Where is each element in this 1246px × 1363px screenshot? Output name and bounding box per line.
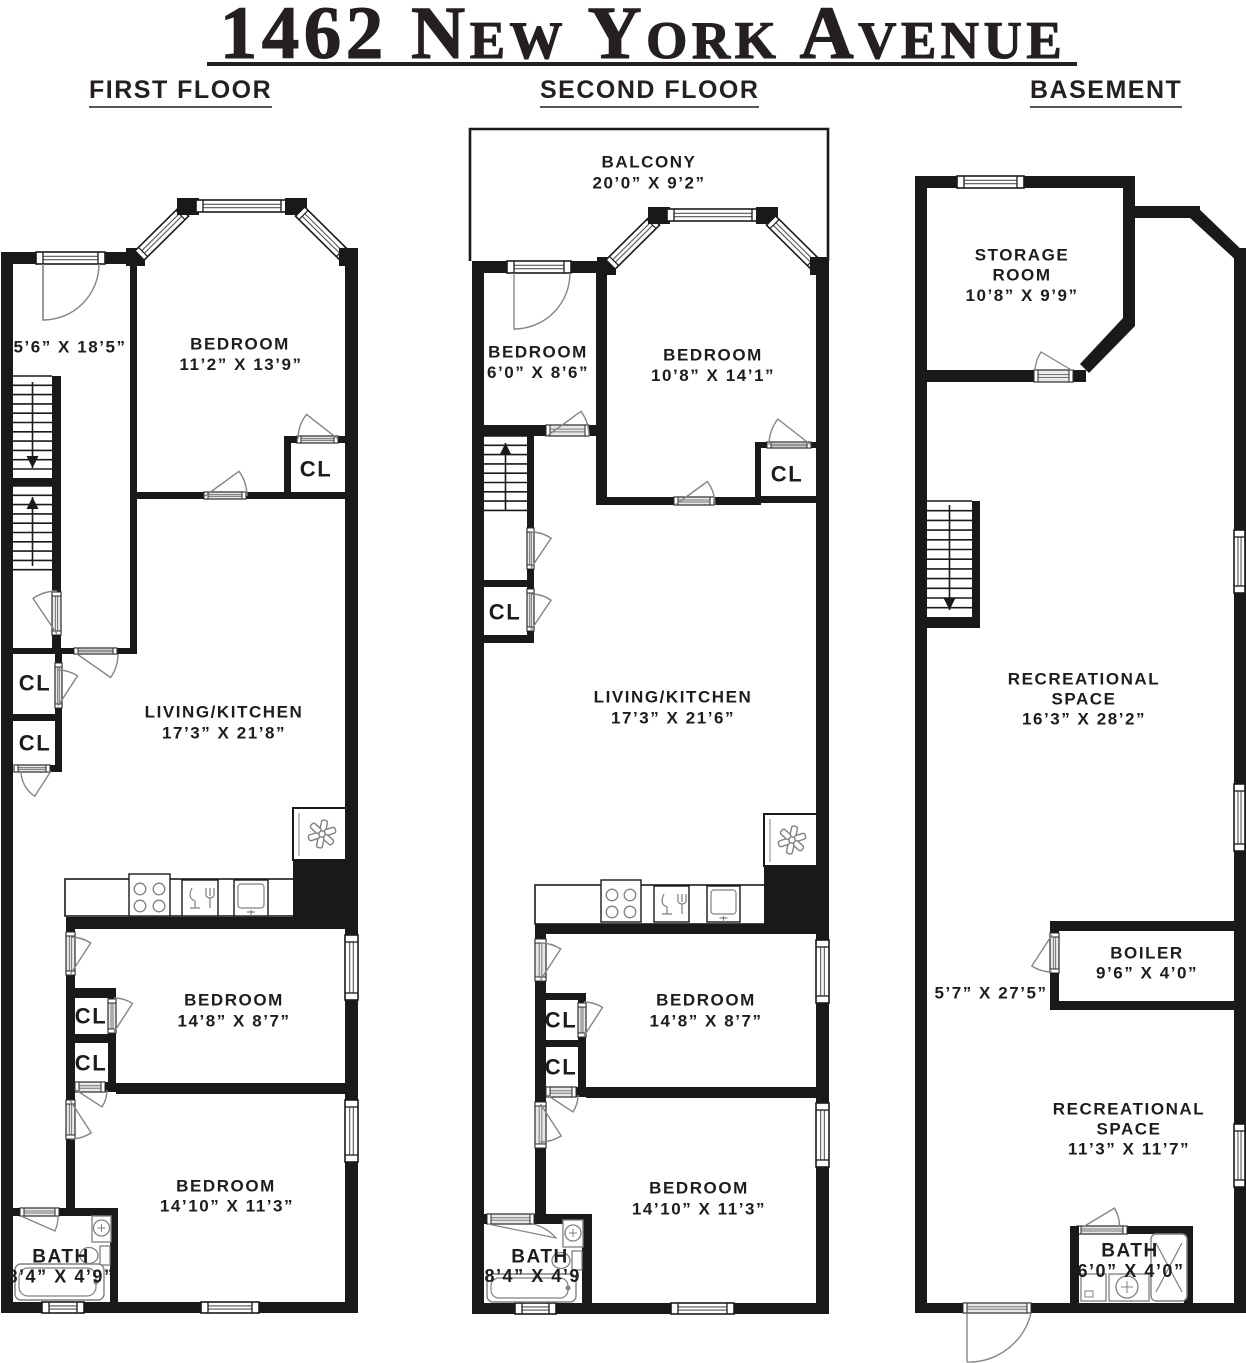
svg-text:CL: CL — [19, 671, 51, 696]
svg-text:BEDROOM: BEDROOM — [488, 343, 588, 362]
svg-text:RECREATIONAL: RECREATIONAL — [1008, 670, 1160, 689]
svg-text:LIVING/KITCHEN: LIVING/KITCHEN — [145, 703, 304, 722]
svg-text:ROOM: ROOM — [992, 266, 1051, 285]
svg-text:BATH: BATH — [32, 1247, 90, 1268]
svg-text:8’4” X 4’9”: 8’4” X 4’9” — [484, 1266, 591, 1286]
svg-text:11’2” X 13’9”: 11’2” X 13’9” — [179, 355, 302, 374]
svg-text:10’8” X 14’1”: 10’8” X 14’1” — [651, 366, 775, 385]
svg-text:CL: CL — [771, 462, 803, 487]
svg-text:BEDROOM: BEDROOM — [649, 1179, 749, 1198]
svg-text:CL: CL — [489, 600, 521, 625]
svg-text:BALCONY: BALCONY — [602, 153, 697, 172]
svg-text:10’8” X 9’9”: 10’8” X 9’9” — [965, 286, 1078, 305]
svg-text:CL: CL — [75, 1004, 107, 1029]
svg-text:16’3” X 28’2”: 16’3” X 28’2” — [1022, 710, 1146, 729]
svg-text:11’3” X 11’7”: 11’3” X 11’7” — [1068, 1140, 1190, 1159]
svg-text:BATH: BATH — [511, 1247, 569, 1268]
svg-text:5’6” X 18’5”: 5’6” X 18’5” — [13, 338, 126, 357]
svg-text:17’3” X 21’8”: 17’3” X 21’8” — [162, 724, 286, 743]
svg-text:9’6” X 4’0”: 9’6” X 4’0” — [1096, 964, 1198, 983]
svg-text:8’4” X 4’9”: 8’4” X 4’9” — [7, 1267, 114, 1287]
svg-text:BEDROOM: BEDROOM — [176, 1177, 276, 1196]
svg-text:6’0” X 8’6”: 6’0” X 8’6” — [487, 363, 589, 382]
svg-text:CL: CL — [545, 1055, 577, 1080]
svg-text:BEDROOM: BEDROOM — [184, 991, 284, 1010]
svg-text:STORAGE: STORAGE — [975, 246, 1070, 265]
svg-text:LIVING/KITCHEN: LIVING/KITCHEN — [594, 688, 753, 707]
svg-text:SPACE: SPACE — [1096, 1120, 1161, 1139]
svg-text:CL: CL — [19, 731, 51, 756]
svg-text:17’3” X 21’6”: 17’3” X 21’6” — [611, 709, 735, 728]
svg-text:BATH: BATH — [1101, 1241, 1159, 1262]
svg-text:CL: CL — [75, 1051, 107, 1076]
svg-text:BEDROOM: BEDROOM — [190, 335, 290, 354]
svg-text:6’0” X 4’0”: 6’0” X 4’0” — [1077, 1261, 1184, 1281]
svg-text:BEDROOM: BEDROOM — [656, 991, 756, 1010]
svg-text:14’8” X 8’7”: 14’8” X 8’7” — [649, 1012, 762, 1031]
svg-text:20’0” X 9’2”: 20’0” X 9’2” — [592, 174, 705, 193]
svg-text:14’10” X 11’3”: 14’10” X 11’3” — [632, 1200, 766, 1219]
svg-text:BEDROOM: BEDROOM — [663, 346, 763, 365]
svg-text:SPACE: SPACE — [1051, 690, 1116, 709]
svg-text:14’8” X 8’7”: 14’8” X 8’7” — [177, 1012, 290, 1031]
svg-text:RECREATIONAL: RECREATIONAL — [1053, 1100, 1205, 1119]
svg-text:CL: CL — [300, 457, 332, 482]
svg-text:BOILER: BOILER — [1110, 944, 1184, 963]
svg-text:CL: CL — [545, 1008, 577, 1033]
svg-text:14’10” X 11’3”: 14’10” X 11’3” — [160, 1197, 294, 1216]
svg-text:5’7” X 27’5”: 5’7” X 27’5” — [934, 984, 1047, 1003]
